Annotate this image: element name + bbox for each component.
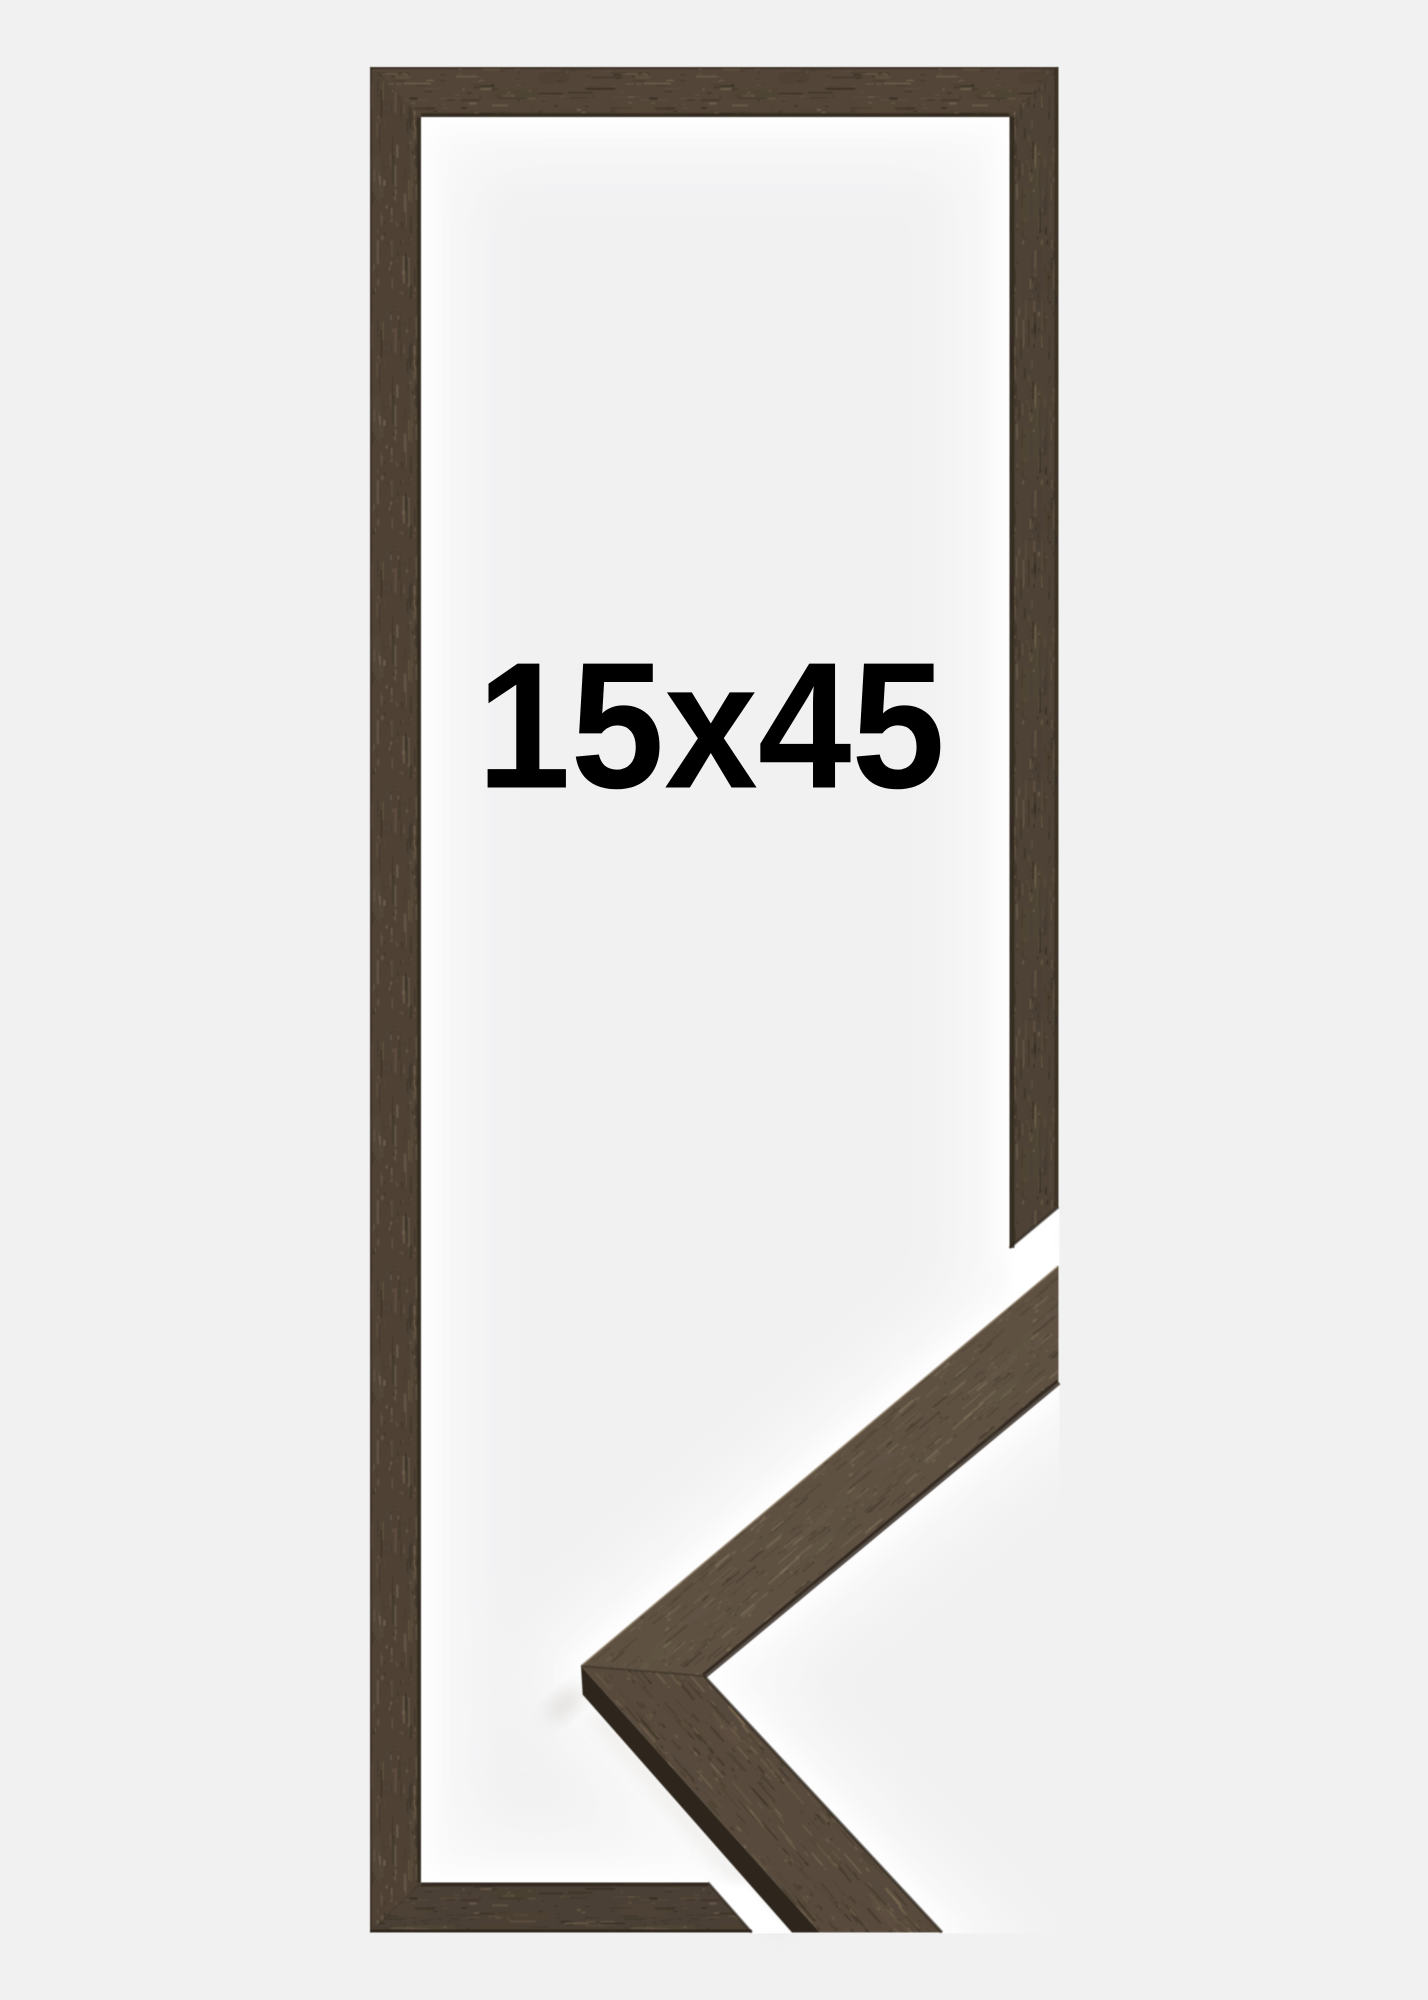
svg-text:15x45: 15x45: [477, 626, 945, 827]
